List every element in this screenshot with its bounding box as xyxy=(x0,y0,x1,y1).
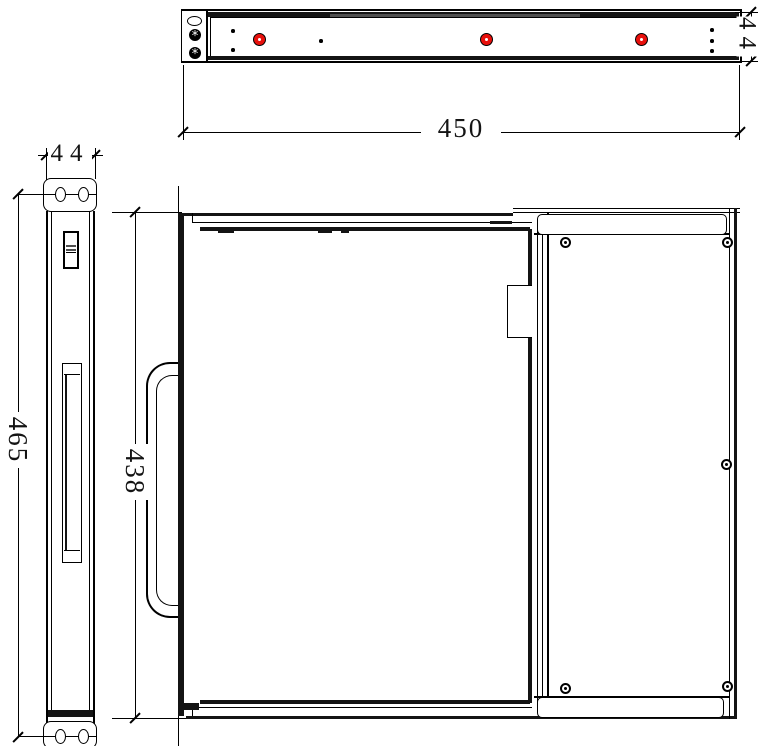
panel-dot xyxy=(710,39,714,43)
round-mounting-hole-icon xyxy=(78,729,89,744)
divider-line xyxy=(537,229,538,703)
rail-tab-mark xyxy=(490,221,512,224)
rail-line-bottom-thick xyxy=(200,700,530,704)
rail-tab-mark xyxy=(218,231,234,233)
oval-mounting-slot-icon xyxy=(187,16,202,26)
plan-view: 438 xyxy=(0,0,758,746)
rail-tab-mark xyxy=(341,231,349,233)
panel-dot xyxy=(231,48,235,52)
star-head-screw-icon: * xyxy=(189,47,201,59)
dim-extension-line xyxy=(112,212,182,213)
tray-inner-wall-upper xyxy=(528,229,532,285)
front-bottom-band xyxy=(208,56,739,60)
panel-screw-icon xyxy=(721,459,732,470)
round-mounting-hole-icon xyxy=(78,187,89,202)
chassis-top-edge xyxy=(513,208,740,209)
panel-screw-icon xyxy=(722,681,733,692)
divider-line xyxy=(547,212,549,717)
dim-label-44-side: 44 xyxy=(48,141,92,167)
panel-dot xyxy=(319,39,323,43)
rail-line-bottom-thin xyxy=(192,707,532,708)
tray-inner-wall-lower xyxy=(528,338,532,703)
dim-label-465: 465 xyxy=(5,412,31,468)
rail-line-top-thin xyxy=(192,222,532,223)
dim-extension-line xyxy=(112,718,186,719)
rail-line-top-thick xyxy=(200,227,530,231)
dim-label-438: 438 xyxy=(122,444,148,500)
star-head-screw-icon: * xyxy=(189,29,201,41)
technical-drawing-canvas: * * 450 44 44 xyxy=(0,0,758,746)
red-led-indicator-icon xyxy=(480,33,493,46)
dim-label-450: 450 xyxy=(421,114,501,143)
side-bottom-ear xyxy=(43,721,97,746)
panel-screw-icon xyxy=(722,237,733,248)
divider-line xyxy=(542,229,543,703)
dim-label-44-right: 44 xyxy=(737,17,758,57)
drawer-front-edge xyxy=(178,213,184,716)
rail-step-block xyxy=(183,703,199,710)
round-mounting-hole-icon xyxy=(55,729,66,744)
panel-dot xyxy=(710,49,714,53)
projection-line xyxy=(178,716,179,746)
wall-notch xyxy=(507,285,532,338)
projection-line xyxy=(178,186,179,213)
red-led-indicator-icon xyxy=(253,33,266,46)
chassis-right-outer-edge xyxy=(734,208,737,719)
rear-panel-bar-bottom xyxy=(537,697,724,718)
rail-tab-mark xyxy=(318,231,332,233)
panel-dot xyxy=(710,28,714,32)
rear-panel-bar-top xyxy=(537,214,727,235)
rail-line-top xyxy=(183,213,513,216)
red-led-indicator-icon xyxy=(635,33,648,46)
round-mounting-hole-icon xyxy=(55,187,66,202)
panel-dot xyxy=(231,29,235,33)
panel-screw-icon xyxy=(560,683,571,694)
panel-screw-icon xyxy=(560,237,571,248)
